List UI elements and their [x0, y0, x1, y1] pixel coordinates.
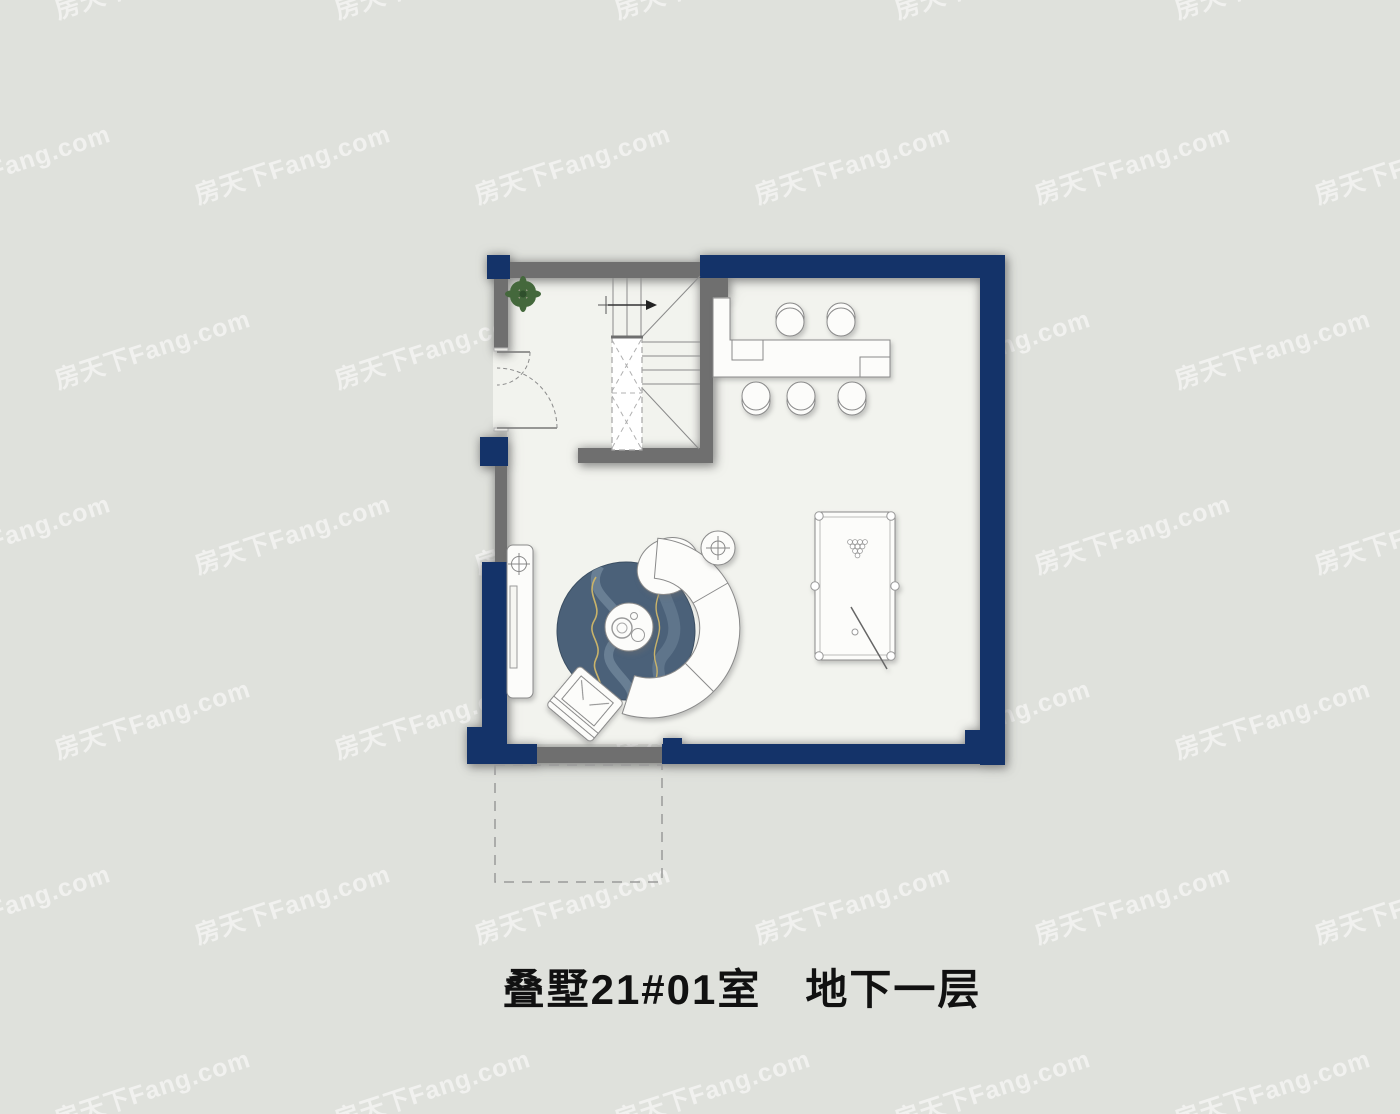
plan-title: 叠墅21#01室 地下一层	[42, 956, 1400, 1017]
billiards-table	[811, 512, 899, 669]
stair-shaft	[611, 337, 643, 450]
cue-ball	[852, 629, 858, 635]
lightwell-dashed-outline	[495, 765, 662, 882]
floor-plan-svg	[0, 0, 1400, 1114]
floorplan-image: 房天下Fang.com房天下Fang.com房天下Fang.com房天下Fang…	[0, 0, 1400, 1114]
coffee-table	[605, 603, 653, 651]
dining-chair	[742, 382, 866, 415]
side-table	[701, 531, 735, 565]
tv-cabinet	[507, 545, 533, 698]
